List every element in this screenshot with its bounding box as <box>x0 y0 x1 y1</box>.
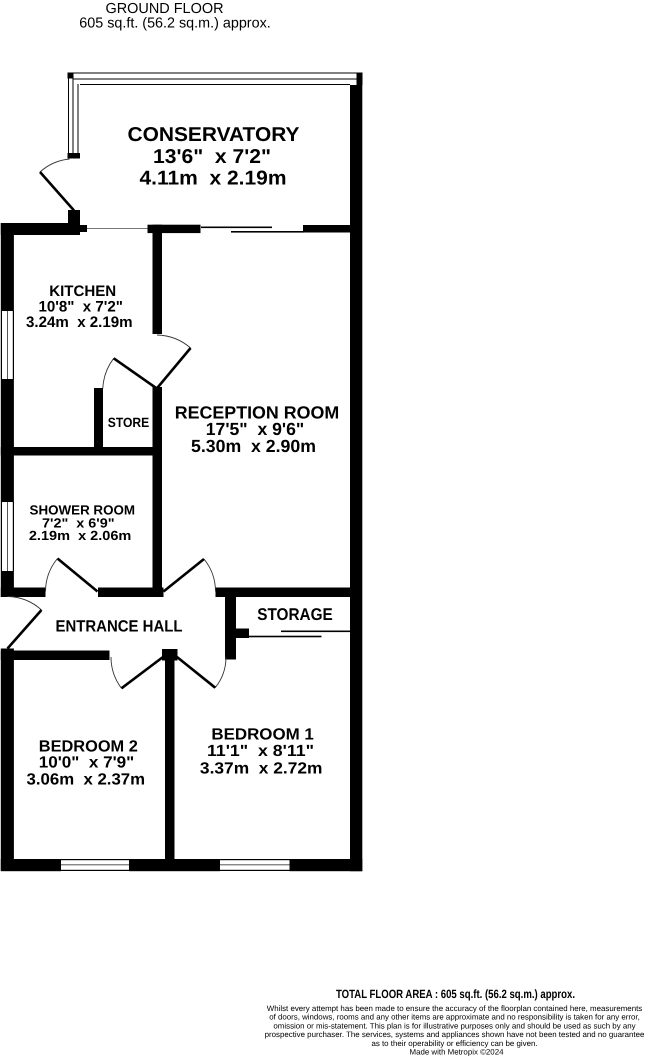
svg-text:KITCHEN: KITCHEN <box>49 283 116 300</box>
svg-text:Made with Metropix ©2024: Made with Metropix ©2024 <box>410 1047 505 1056</box>
svg-text:STORAGE: STORAGE <box>257 605 333 624</box>
svg-text:4.11m x 2.19m: 4.11m x 2.19m <box>140 167 287 189</box>
svg-text:3.24m x 2.19m: 3.24m x 2.19m <box>26 314 133 331</box>
svg-text:5.30m x 2.90m: 5.30m x 2.90m <box>191 436 316 456</box>
svg-text:GROUND FLOOR: GROUND FLOOR <box>106 1 224 17</box>
svg-text:BEDROOM 1: BEDROOM 1 <box>211 726 314 744</box>
svg-text:13'6" x 7'2": 13'6" x 7'2" <box>153 146 271 168</box>
svg-text:TOTAL FLOOR AREA : 605 sq.ft.: TOTAL FLOOR AREA : 605 sq.ft. (56.2 sq.m… <box>336 987 575 1001</box>
svg-text:STORE: STORE <box>108 415 150 430</box>
svg-text:Whilst every attempt has been: Whilst every attempt has been made to en… <box>267 1004 643 1013</box>
svg-text:10'0" x 7'9": 10'0" x 7'9" <box>39 754 135 772</box>
svg-text:prospective purchaser. The ser: prospective purchaser. The services, sys… <box>265 1030 645 1039</box>
svg-text:2.19m x 2.06m: 2.19m x 2.06m <box>29 528 132 543</box>
svg-text:of doors, windows, rooms and a: of doors, windows, rooms and any other i… <box>269 1013 640 1022</box>
svg-text:CONSERVATORY: CONSERVATORY <box>128 124 301 146</box>
svg-text:11'1" x 8'11": 11'1" x 8'11" <box>207 742 314 760</box>
svg-text:3.06m x 2.37m: 3.06m x 2.37m <box>27 771 146 789</box>
svg-text:ENTRANCE HALL: ENTRANCE HALL <box>56 617 183 635</box>
svg-text:605 sq.ft. (56.2 sq.m.) approx: 605 sq.ft. (56.2 sq.m.) approx. <box>79 16 271 32</box>
svg-text:omission or mis-statement. Thi: omission or mis-statement. This plan is … <box>273 1021 635 1030</box>
svg-text:3.37m x 2.72m: 3.37m x 2.72m <box>200 760 323 778</box>
